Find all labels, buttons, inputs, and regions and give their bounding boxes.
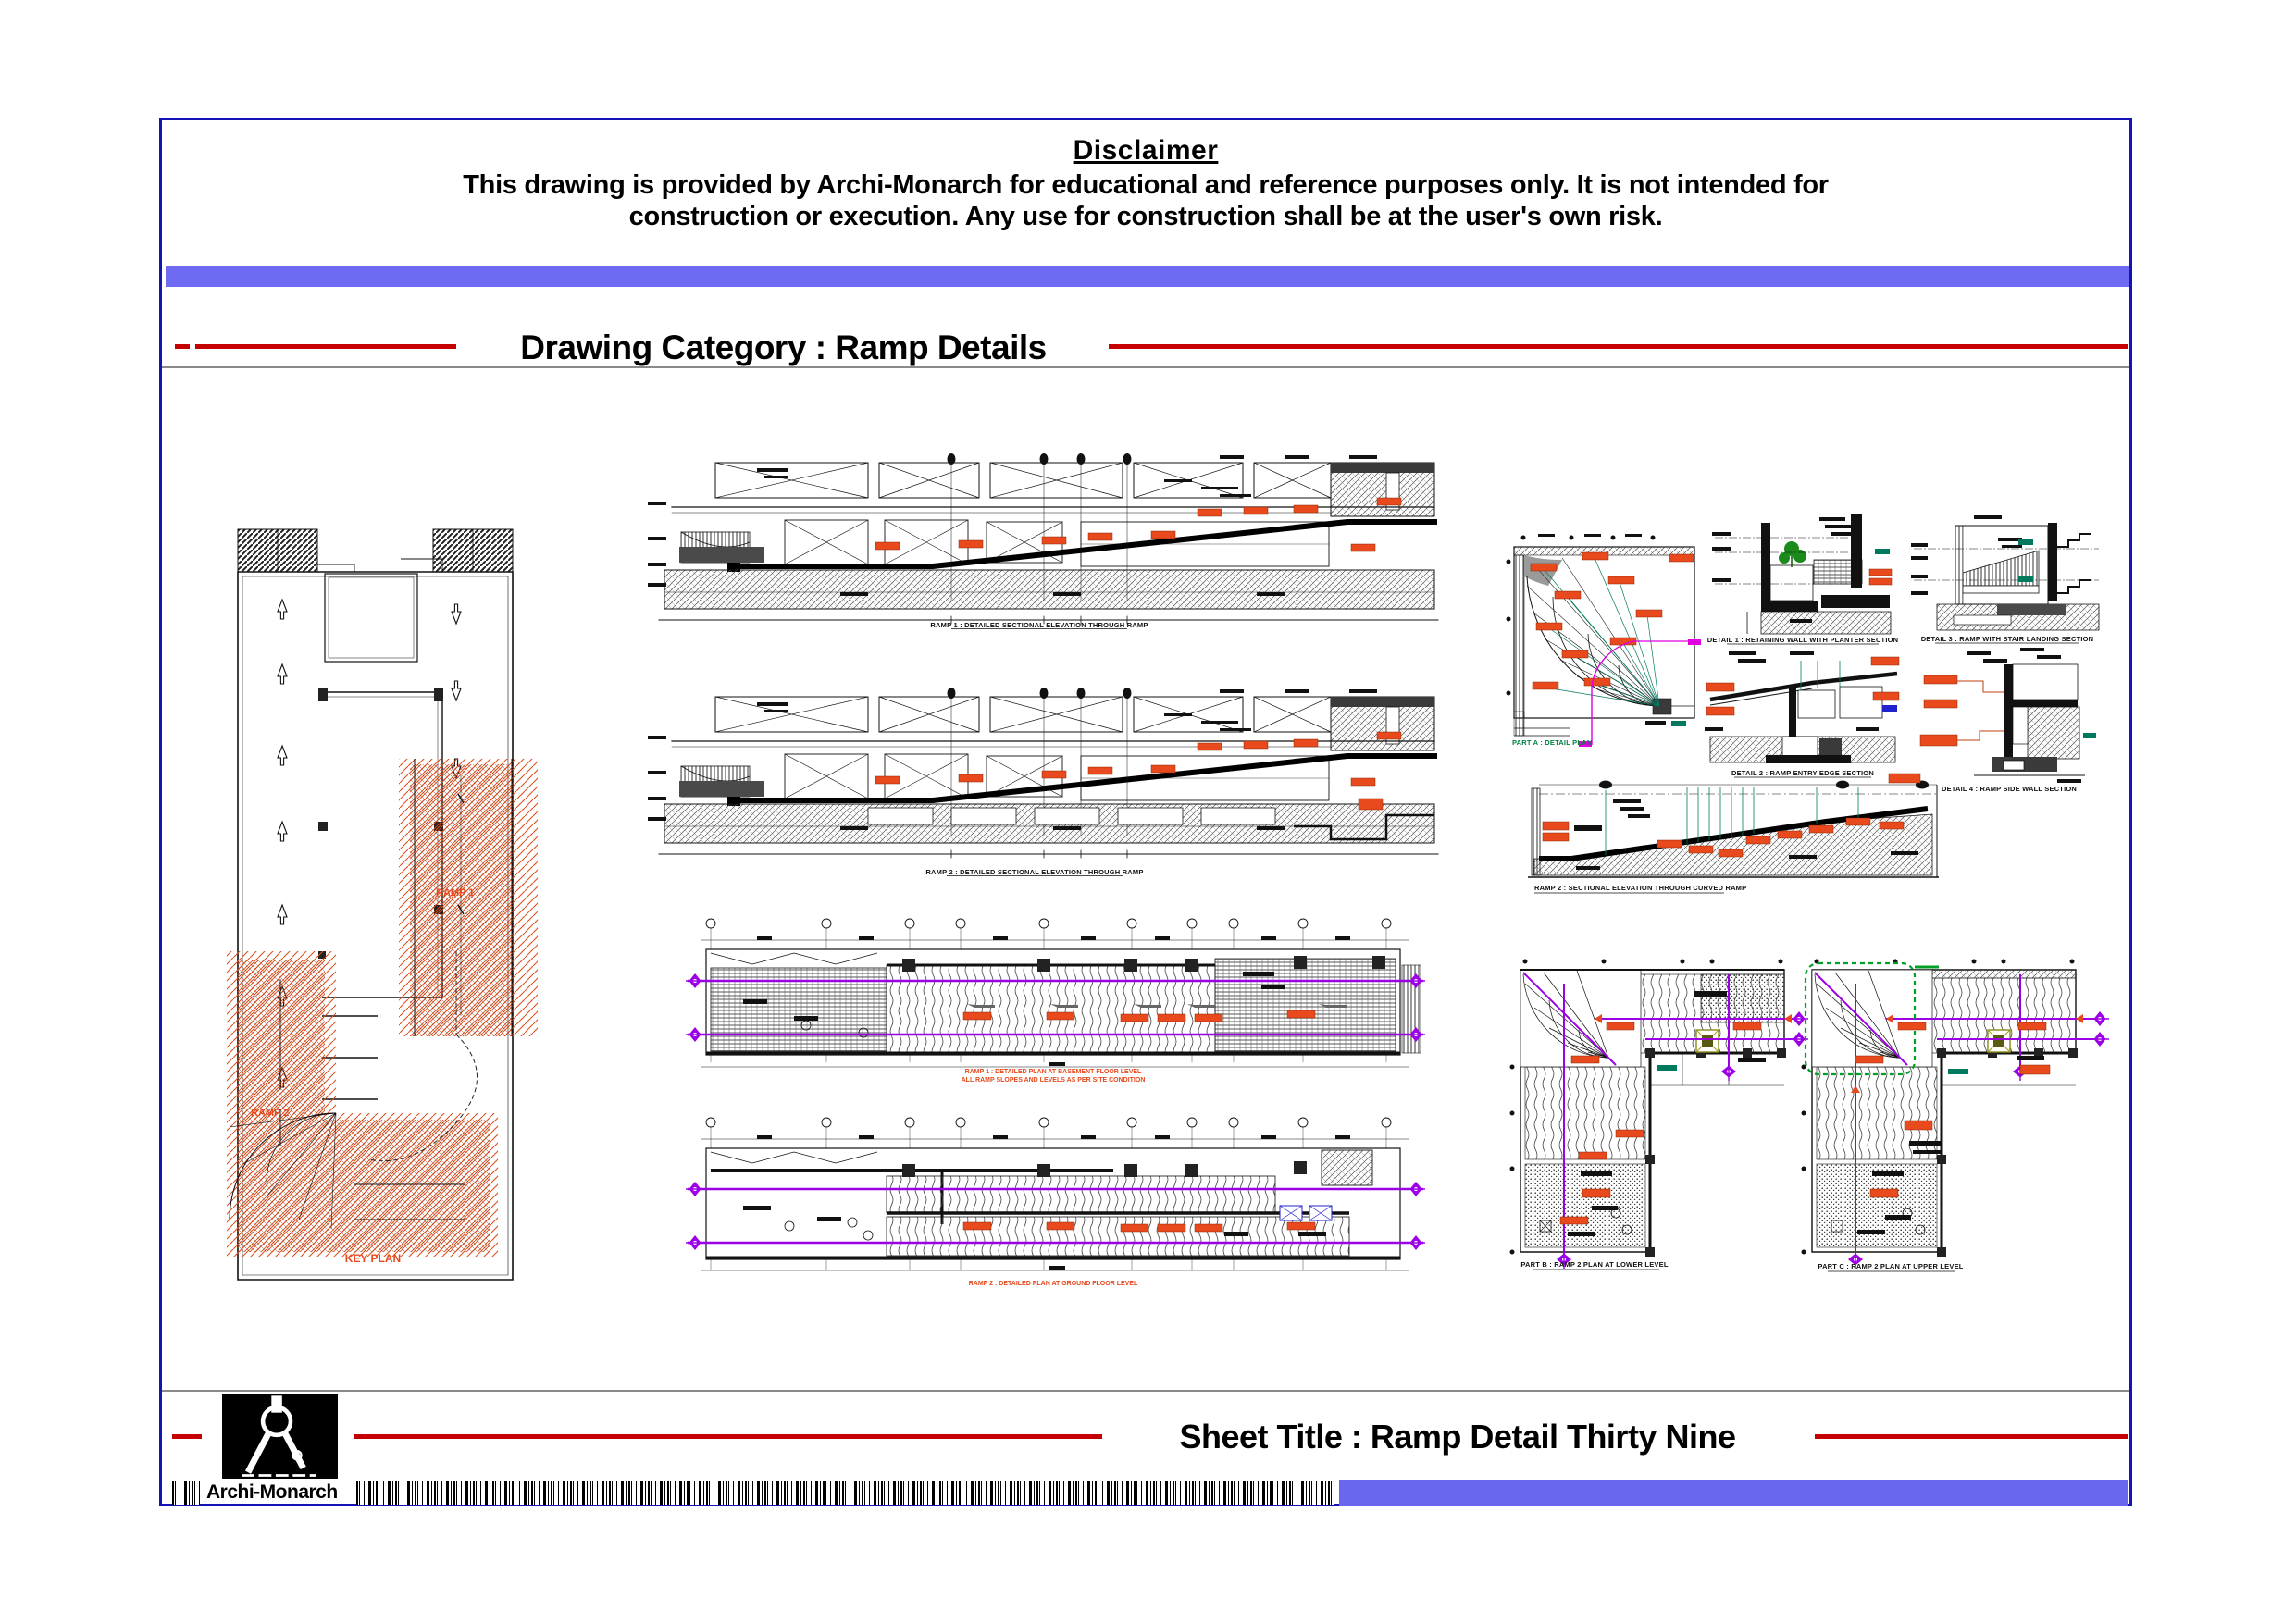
category-title: Drawing Category : Ramp Details (467, 328, 1099, 367)
detail-a-labels (1869, 569, 1892, 585)
detail-d-labels (1920, 675, 1957, 746)
lplan1-body (1510, 960, 1787, 1258)
detail-c-drawing: DETAIL 3 : RAMP WITH STAIR LANDING SECTI… (1909, 512, 2105, 646)
footer-red-line-left (354, 1434, 1102, 1439)
detail-b-body (1710, 674, 1897, 763)
disclaimer-line-1: This drawing is provided by Archi-Monarc… (162, 170, 2129, 201)
divider-top (162, 366, 2129, 368)
lplan1-ref-stub (1657, 1065, 1677, 1071)
detail-d-leader-lines (1957, 681, 2004, 740)
drawing-sheet: Disclaimer This drawing is provided by A… (159, 118, 2132, 1506)
detail-a-ref-stub (1875, 549, 1890, 554)
ramp-section-1-caption: RAMP 1 : DETAILED SECTIONAL ELEVATION TH… (930, 621, 1148, 629)
key-plan-ramp2-label: RAMP 2 (251, 1108, 289, 1119)
ramp-section-2-drawing: RAMP 2 : DETAILED SECTIONAL ELEVATION TH… (646, 688, 1437, 877)
category-red-line-left (195, 344, 456, 349)
blue-band-top (166, 266, 2129, 287)
barcode-main (356, 1481, 1334, 1505)
key-plan-down-arrows (452, 604, 461, 778)
ramp-section-2-caption: RAMP 2 : DETAILED SECTIONAL ELEVATION TH… (925, 868, 1143, 876)
barcode-left (172, 1481, 200, 1505)
key-plan-cores (238, 529, 513, 572)
detail-b-blue-stub (1882, 705, 1897, 712)
curved-ramp-plan-drawing: PART A : DETAIL PLAN (1507, 530, 1706, 752)
curve-plan-ref-stub (1671, 721, 1686, 726)
compass-icon (222, 1394, 338, 1479)
footer-red-dash (172, 1434, 202, 1439)
ramp-section-1-drawing: RAMP 1 : DETAILED SECTIONAL ELEVATION TH… (646, 453, 1437, 629)
detail-d-caption: DETAIL 4 : RAMP SIDE WALL SECTION (1942, 785, 2077, 793)
l-plan-1-caption: PART B : RAMP 2 PLAN AT LOWER LEVEL (1520, 1260, 1668, 1269)
long-section-drawing: RAMP 2 : SECTIONAL ELEVATION THROUGH CUR… (1520, 766, 1946, 896)
footer-red-line-right (1815, 1434, 2128, 1439)
l-plan-2-drawing: PART C : RAMP 2 PLAN AT UPPER LEVEL (1798, 947, 2108, 1275)
ramp-plan-1-caption-2: ALL RAMP SLOPES AND LEVELS AS PER SITE C… (962, 1077, 1146, 1084)
disclaimer-title: Disclaimer (162, 135, 2129, 167)
detail-c-caption: DETAIL 3 : RAMP WITH STAIR LANDING SECTI… (1921, 635, 2094, 643)
detail-d-ref-stub (2083, 733, 2096, 738)
l-plan-1-drawing: PART B : RAMP 2 PLAN AT LOWER LEVEL (1507, 947, 1807, 1272)
detail-b-drawing: DETAIL 2 : RAMP ENTRY EDGE SECTION (1701, 646, 1905, 780)
ramp-plan-2-drawing: RAMP 2 : DETAILED PLAN AT GROUND FLOOR L… (688, 1113, 1423, 1294)
l-plan-2-caption: PART C : RAMP 2 PLAN AT UPPER LEVEL (1818, 1262, 1963, 1270)
category-red-dash (175, 344, 190, 349)
key-plan-caption: KEY PLAN (345, 1252, 401, 1265)
category-red-line-right (1109, 344, 2128, 349)
ramp-plan-1-drawing: RAMP 1 : DETAILED PLAN AT BASEMENT FLOOR… (688, 914, 1423, 1085)
divider-bottom (162, 1390, 2129, 1392)
plan1-body (706, 949, 1421, 1055)
curved-ramp-plan-caption: PART A : DETAIL PLAN (1512, 738, 1592, 747)
sheet-title: Sheet Title : Ramp Detail Thirty Nine (1106, 1418, 1809, 1456)
archi-monarch-logo (222, 1394, 338, 1479)
key-plan-drawing: RAMP 1 RAMP 2 KEY PLAN (225, 516, 549, 1289)
detail-d-body (1974, 664, 2085, 775)
brand-name: Archi-Monarch (206, 1481, 338, 1504)
disclaimer-line-2: construction or execution. Any use for c… (162, 202, 2129, 232)
long-section-caption: RAMP 2 : SECTIONAL ELEVATION THROUGH CUR… (1534, 884, 1746, 892)
lplan2-body (1802, 960, 2079, 1258)
blue-band-bottom (1339, 1480, 2128, 1506)
ramp-plan-2-caption: RAMP 2 : DETAILED PLAN AT GROUND FLOOR L… (969, 1281, 1138, 1287)
plant-icon (1779, 541, 1806, 567)
lplan2-ref-stub (1948, 1069, 1968, 1074)
detail-a-drawing: DETAIL 1 : RETAINING WALL WITH PLANTER S… (1710, 512, 1895, 646)
key-plan-ramp1-label: RAMP 1 (436, 887, 474, 898)
ramp-plan-1-caption-1: RAMP 1 : DETAILED PLAN AT BASEMENT FLOOR… (965, 1069, 1142, 1075)
detail-a-caption: DETAIL 1 : RETAINING WALL WITH PLANTER S… (1707, 636, 1899, 644)
